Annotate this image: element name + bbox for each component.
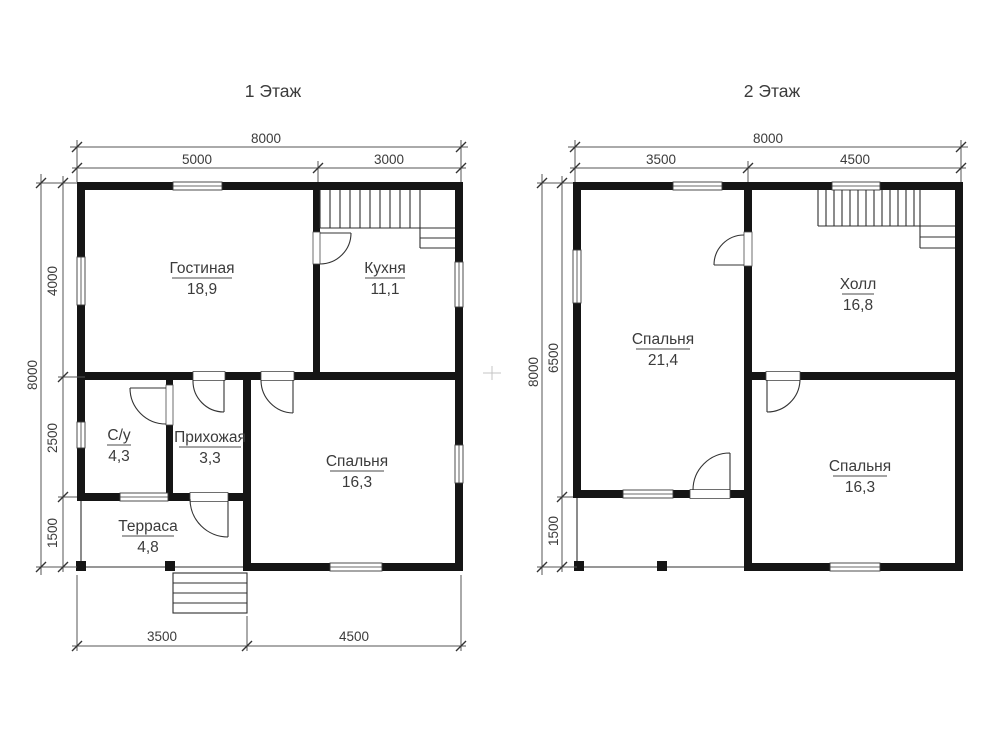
room-area: 21,4	[648, 352, 679, 369]
f1-room-label-terrace: Терраса 4,8	[118, 518, 178, 556]
f1-dim-left-0: 4000	[45, 266, 60, 296]
f2-dim-left-1: 1500	[546, 516, 561, 546]
room-area: 16,8	[843, 297, 873, 314]
f1-dim-left-2: 1500	[45, 518, 60, 548]
f2-dim-width-total: 8000	[753, 131, 783, 146]
f2-room-label-hall: Холл 16,8	[840, 276, 877, 314]
floor2-title: 2 Этаж	[744, 81, 801, 101]
room-name: Спальня	[632, 331, 694, 348]
room-name: С/у	[107, 427, 131, 444]
f1-room-label-bedroom: Спальня 16,3	[326, 453, 388, 491]
room-area: 11,1	[370, 281, 399, 298]
f1-dim-height-total: 8000	[25, 360, 40, 390]
f2-stairs	[818, 190, 955, 248]
f1-dim-top-left: 5000	[182, 152, 212, 167]
room-area: 16,3	[342, 474, 372, 491]
room-area: 4,8	[137, 539, 159, 556]
f2-dim-top-left: 3500	[646, 152, 676, 167]
f1-dim-left-1: 2500	[45, 423, 60, 453]
f1-dim-width-total: 8000	[251, 131, 281, 146]
room-name: Спальня	[326, 453, 388, 470]
f1-room-label-bathroom: С/у 4,3	[107, 427, 131, 465]
floor-plan-page: 1 Этаж 8000 5000 3000 8000 4000 2500 150…	[0, 0, 1000, 750]
f1-room-label-living: Гостиная 18,9	[169, 260, 234, 298]
f1-room-label-kitchen: Кухня 11,1	[364, 260, 405, 298]
f1-dim-bottom-right: 4500	[339, 629, 369, 644]
room-area: 3,3	[199, 450, 221, 467]
watermark-crosshair	[483, 366, 501, 380]
f2-dim-top-right: 4500	[840, 152, 870, 167]
room-name: Прихожая	[174, 429, 246, 446]
floor1-plan: 1 Этаж 8000 5000 3000 8000 4000 2500 150…	[25, 81, 468, 651]
f1-stairs	[320, 190, 455, 248]
room-name: Гостиная	[169, 260, 234, 277]
f1-dimension-lines	[36, 140, 468, 651]
room-name: Кухня	[364, 260, 405, 277]
f2-balcony-outline	[574, 498, 744, 571]
f2-room-label-bedroom2: Спальня 16,3	[829, 458, 891, 496]
room-name: Холл	[840, 276, 877, 293]
room-area: 18,9	[187, 281, 217, 298]
floor1-title: 1 Этаж	[245, 81, 302, 101]
room-area: 4,3	[108, 448, 130, 465]
floor2-plan: 2 Этаж 8000 3500 4500 8000 6500 1500 Спа…	[526, 81, 968, 575]
room-name: Терраса	[118, 518, 178, 535]
room-name: Спальня	[829, 458, 891, 475]
f2-dimension-lines	[537, 140, 968, 575]
floor-plan-drawing: 1 Этаж 8000 5000 3000 8000 4000 2500 150…	[0, 0, 1000, 750]
room-area: 16,3	[845, 479, 875, 496]
f1-room-label-hallway: Прихожая 3,3	[174, 429, 246, 467]
f2-dim-left-0: 6500	[546, 343, 561, 373]
f1-dim-bottom-left: 3500	[147, 629, 177, 644]
f2-dim-height-total: 8000	[526, 357, 541, 387]
f2-room-label-bedroom1: Спальня 21,4	[632, 331, 694, 369]
f1-dim-top-right: 3000	[374, 152, 404, 167]
